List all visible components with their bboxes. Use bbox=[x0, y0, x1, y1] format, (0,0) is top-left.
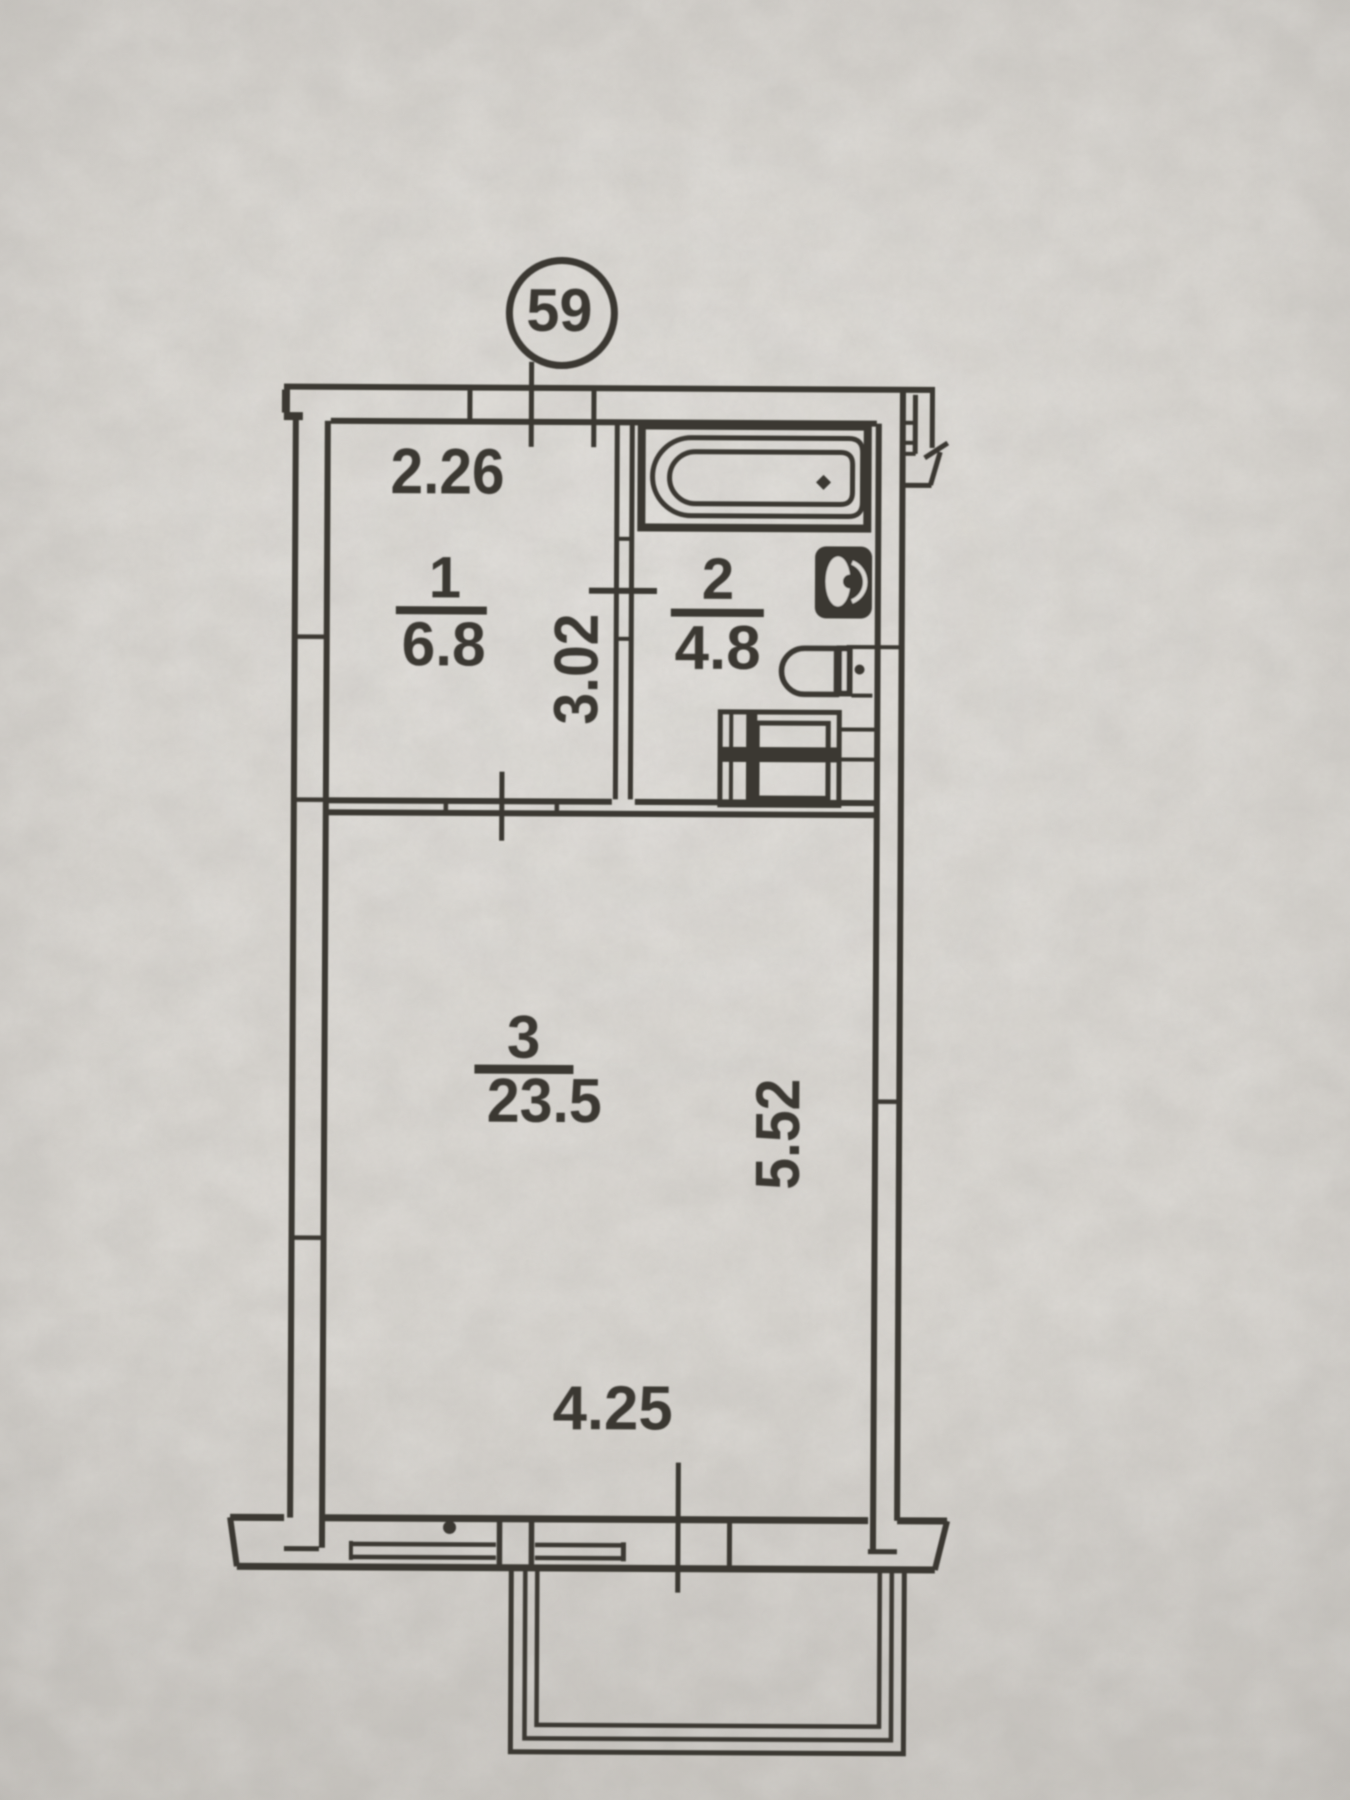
svg-text:4.25: 4.25 bbox=[552, 1374, 672, 1444]
svg-text:59: 59 bbox=[526, 277, 592, 344]
svg-text:3.02: 3.02 bbox=[542, 613, 612, 724]
svg-text:5.52: 5.52 bbox=[744, 1078, 814, 1189]
svg-text:3: 3 bbox=[507, 1004, 541, 1071]
svg-text:1: 1 bbox=[429, 545, 462, 610]
svg-text:6.8: 6.8 bbox=[401, 610, 485, 679]
svg-text:2.26: 2.26 bbox=[390, 435, 504, 508]
svg-text:4.8: 4.8 bbox=[674, 614, 760, 683]
svg-text:23.5: 23.5 bbox=[487, 1067, 602, 1137]
svg-text:2: 2 bbox=[702, 547, 735, 612]
